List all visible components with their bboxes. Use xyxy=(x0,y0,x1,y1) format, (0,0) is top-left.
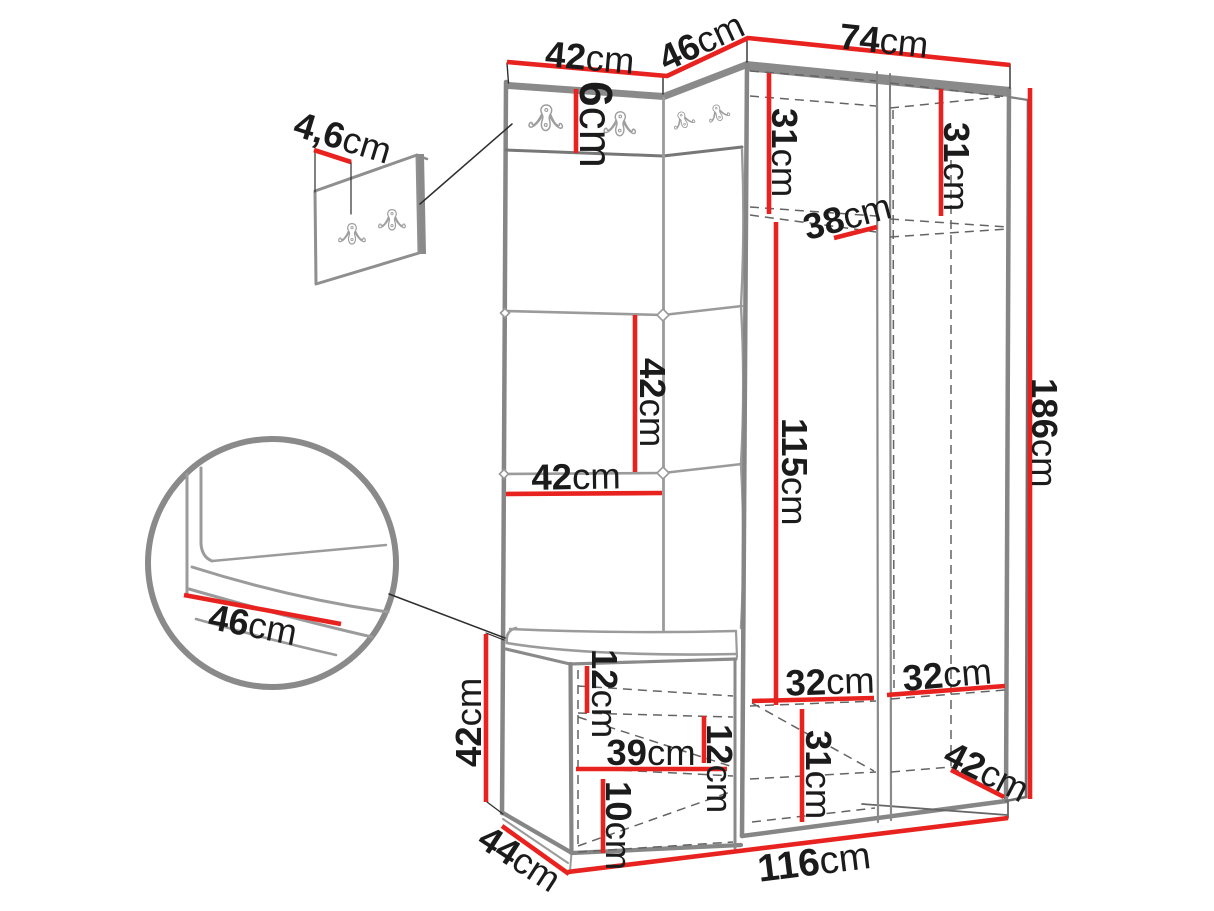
svg-text:31cm: 31cm xyxy=(936,122,977,211)
svg-text:31cm: 31cm xyxy=(798,730,839,819)
svg-text:10cm: 10cm xyxy=(598,781,639,870)
svg-text:42cm: 42cm xyxy=(544,33,636,82)
svg-text:12cm: 12cm xyxy=(699,724,740,813)
svg-text:32cm: 32cm xyxy=(901,650,993,699)
svg-text:186cm: 186cm xyxy=(1024,378,1065,488)
svg-text:115cm: 115cm xyxy=(774,418,815,526)
svg-text:42cm: 42cm xyxy=(531,455,621,498)
svg-text:6cm: 6cm xyxy=(570,81,622,168)
svg-text:12cm: 12cm xyxy=(584,649,625,738)
svg-text:42cm: 42cm xyxy=(632,358,673,447)
svg-text:31cm: 31cm xyxy=(764,108,805,197)
svg-text:32cm: 32cm xyxy=(785,660,876,704)
svg-text:42cm: 42cm xyxy=(448,678,489,767)
